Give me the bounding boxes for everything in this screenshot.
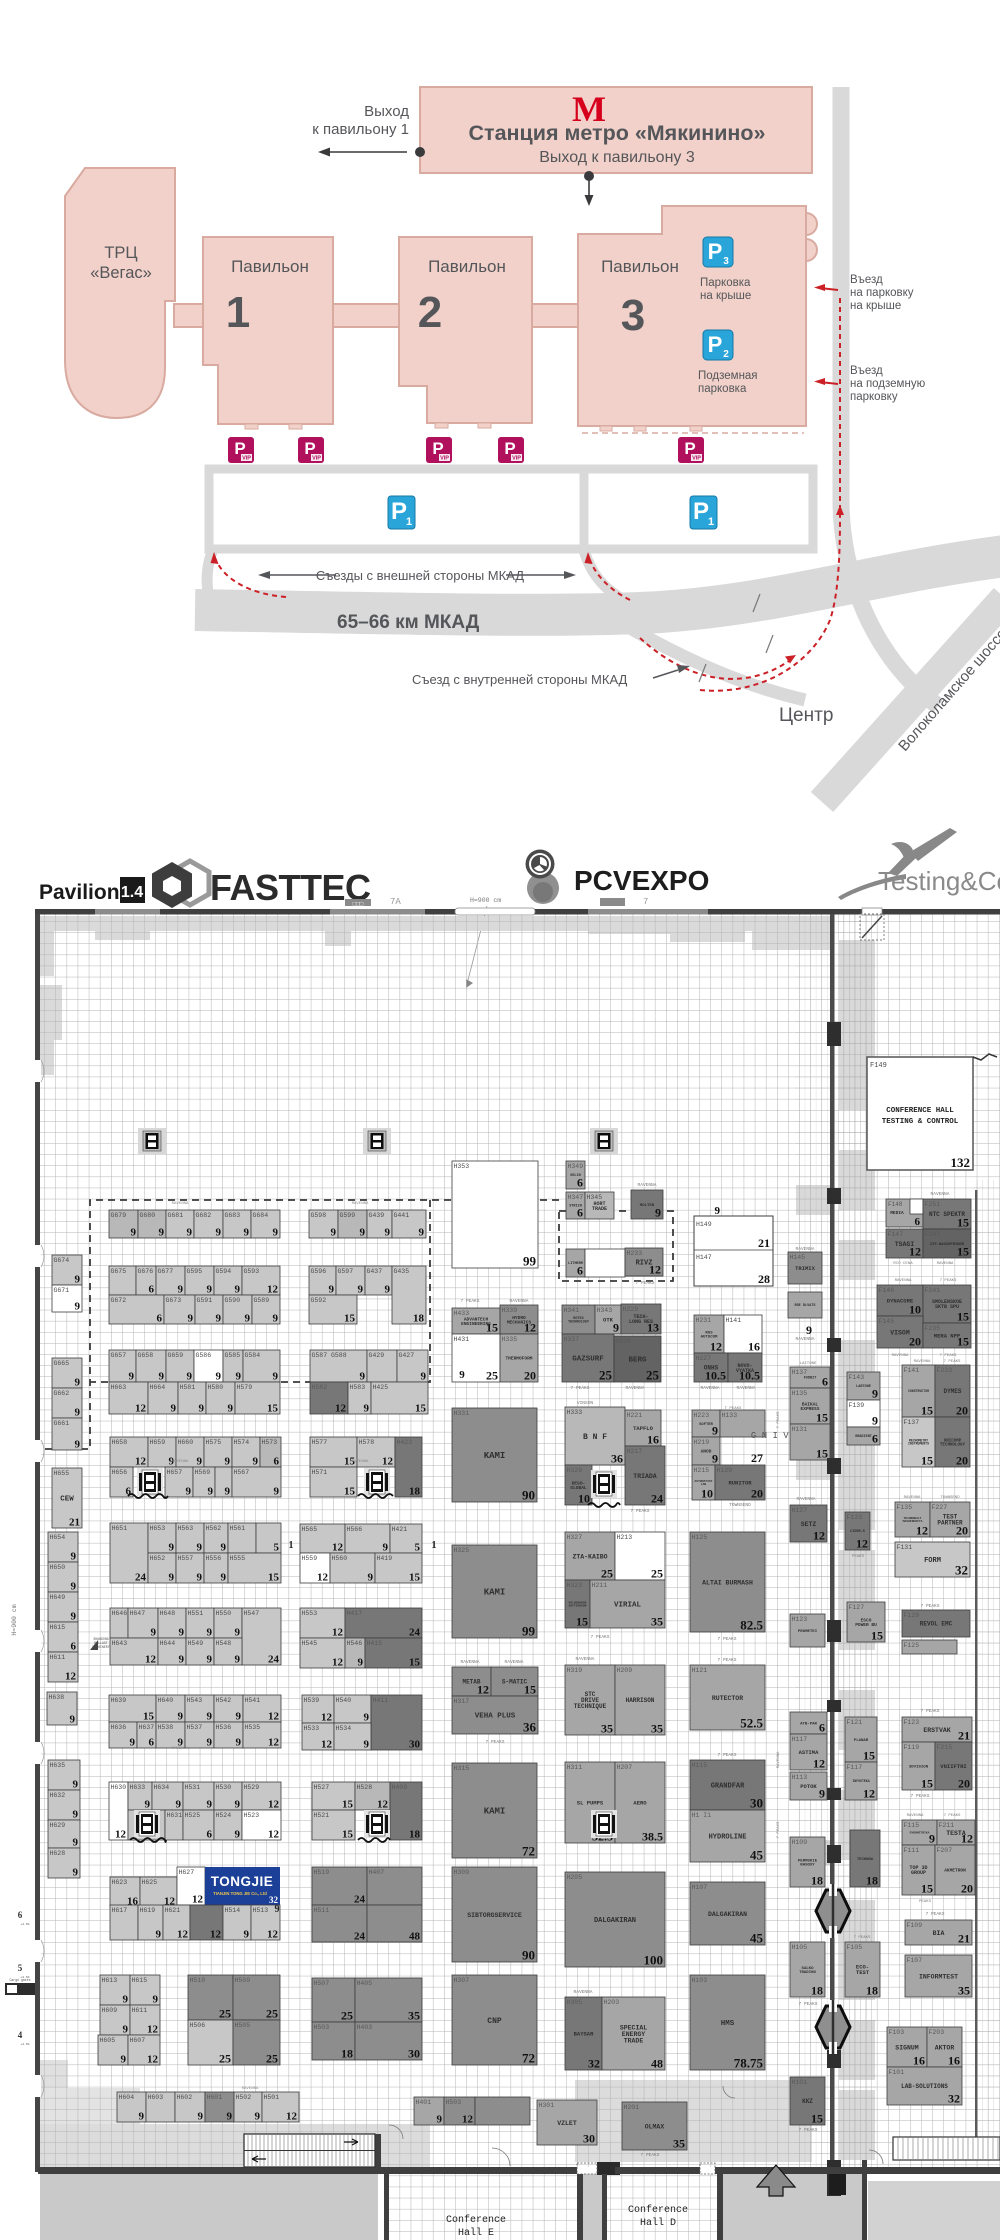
- svg-text:Подземная: Подземная: [698, 370, 758, 382]
- svg-text:15: 15: [957, 1245, 969, 1259]
- svg-text:12: 12: [321, 1712, 333, 1724]
- svg-text:7 PEAKS: 7 PEAKS: [486, 1739, 505, 1745]
- svg-text:7 PEAKS: 7 PEAKS: [799, 2001, 818, 2007]
- svg-text:CEW: CEW: [60, 1496, 74, 1504]
- svg-text:H329: H329: [567, 1467, 583, 1474]
- svg-text:G427: G427: [399, 1352, 415, 1359]
- svg-text:RAVENNA: RAVENNA: [777, 1751, 781, 1768]
- svg-text:VEHA PLUS: VEHA PLUS: [475, 1713, 516, 1721]
- svg-text:100: 100: [644, 1953, 664, 1968]
- svg-text:G439: G439: [369, 1212, 385, 1219]
- svg-text:RAVENNA: RAVENNA: [242, 2087, 259, 2091]
- svg-text:Центр: Центр: [779, 705, 833, 726]
- svg-text:H505: H505: [235, 2022, 251, 2029]
- svg-text:F147: F147: [888, 1231, 904, 1238]
- svg-text:9: 9: [176, 1799, 182, 1811]
- svg-text:H619: H619: [140, 1907, 156, 1914]
- svg-text:G665: G665: [54, 1360, 70, 1367]
- svg-text:H651: H651: [112, 1525, 128, 1532]
- svg-text:6: 6: [577, 1264, 583, 1278]
- svg-text:15: 15: [342, 1799, 354, 1811]
- svg-text:H131: H131: [792, 1426, 808, 1433]
- svg-text:H660: H660: [178, 1439, 194, 1446]
- svg-text:REVOL EMC: REVOL EMC: [920, 1621, 953, 1628]
- svg-text:9: 9: [169, 1572, 175, 1584]
- svg-text:H343: H343: [597, 1307, 613, 1314]
- svg-text:24: 24: [409, 1627, 421, 1639]
- svg-text:H=900 cm: H=900 cm: [470, 897, 501, 904]
- svg-text:H654: H654: [50, 1534, 66, 1541]
- svg-text:6: 6: [577, 1176, 583, 1190]
- svg-text:H147: H147: [696, 1254, 712, 1261]
- svg-text:9: 9: [368, 1572, 374, 1584]
- svg-text:F149: F149: [870, 1062, 887, 1070]
- svg-text:9: 9: [360, 1227, 366, 1239]
- svg-text:9: 9: [235, 1654, 241, 1666]
- svg-text:H403: H403: [357, 2024, 373, 2031]
- svg-text:ASTIMA: ASTIMA: [799, 1749, 820, 1756]
- svg-text:15: 15: [811, 2112, 823, 2126]
- svg-text:DYMES: DYMES: [943, 1388, 961, 1395]
- svg-text:35: 35: [408, 2009, 420, 2023]
- svg-text:H537: H537: [187, 1724, 203, 1731]
- svg-text:16: 16: [647, 1433, 659, 1447]
- svg-text:12: 12: [916, 1524, 928, 1538]
- svg-text:H540: H540: [336, 1697, 352, 1704]
- svg-text:H535: H535: [245, 1724, 261, 1731]
- svg-text:12: 12: [377, 1799, 389, 1811]
- svg-text:H105: H105: [792, 1944, 808, 1951]
- svg-text:GRADIENT: GRADIENT: [855, 1435, 872, 1439]
- svg-text:H533: H533: [304, 1725, 320, 1732]
- svg-text:H514: H514: [225, 1907, 241, 1914]
- svg-text:H309: H309: [454, 1869, 470, 1876]
- svg-text:ANOD: ANOD: [701, 1449, 712, 1455]
- svg-text:SL PUMPS: SL PUMPS: [577, 1799, 604, 1806]
- svg-text:9: 9: [207, 1284, 213, 1296]
- svg-text:9: 9: [613, 1321, 619, 1335]
- svg-text:H542: H542: [216, 1697, 232, 1704]
- svg-text:27: 27: [751, 1451, 763, 1465]
- svg-text:90: 90: [522, 1948, 535, 1963]
- svg-text:9: 9: [364, 1403, 370, 1415]
- svg-text:«Вегас»: «Вегас»: [90, 264, 152, 282]
- svg-text:12: 12: [268, 1711, 280, 1723]
- svg-text:G591: G591: [197, 1297, 213, 1304]
- svg-text:12: 12: [147, 2024, 159, 2036]
- svg-text:H646: H646: [112, 1610, 128, 1617]
- svg-text:25: 25: [219, 2052, 231, 2066]
- svg-text:INSTRUMENTS: INSTRUMENTS: [908, 1442, 929, 1446]
- svg-text:9: 9: [199, 1403, 205, 1415]
- svg-text:G592: G592: [311, 1297, 327, 1304]
- svg-text:H341: H341: [564, 1307, 580, 1314]
- svg-text:H557: H557: [178, 1555, 194, 1562]
- svg-text:7 PEAKS: 7 PEAKS: [636, 1280, 655, 1286]
- svg-text:10.5: 10.5: [705, 1369, 726, 1383]
- svg-text:H561: H561: [230, 1525, 246, 1532]
- svg-text:H615: H615: [50, 1624, 66, 1631]
- svg-text:H511: H511: [314, 1907, 330, 1914]
- svg-text:15: 15: [957, 1335, 969, 1349]
- svg-text:21: 21: [958, 1729, 970, 1743]
- svg-text:VIP: VIP: [440, 456, 449, 462]
- svg-text:RAVENNA: RAVENNA: [510, 1298, 529, 1304]
- svg-text:9: 9: [187, 1371, 193, 1383]
- svg-text:F145: F145: [879, 1318, 895, 1325]
- svg-text:1: 1: [226, 288, 250, 337]
- svg-text:H107: H107: [692, 1884, 708, 1891]
- svg-text:78.75: 78.75: [734, 2056, 764, 2071]
- svg-text:H647: H647: [130, 1610, 146, 1617]
- svg-text:7 PEAKS: 7 PEAKS: [461, 1298, 480, 1304]
- svg-text:9: 9: [385, 1284, 391, 1296]
- svg-text:15: 15: [267, 1403, 279, 1415]
- svg-text:F129: F129: [904, 1612, 920, 1619]
- svg-text:9: 9: [253, 1456, 259, 1468]
- svg-text:H548: H548: [216, 1640, 232, 1647]
- svg-text:9: 9: [75, 1274, 81, 1286]
- svg-text:4: 4: [18, 2030, 23, 2040]
- svg-text:25: 25: [601, 1567, 613, 1581]
- svg-text:PLANAR: PLANAR: [854, 1739, 869, 1743]
- svg-text:Hall E: Hall E: [458, 2227, 494, 2239]
- svg-text:F125: F125: [904, 1642, 920, 1649]
- svg-text:H335: H335: [502, 1336, 518, 1343]
- svg-text:38.5: 38.5: [642, 1830, 663, 1844]
- svg-text:9: 9: [273, 1227, 279, 1239]
- svg-text:48: 48: [409, 1931, 421, 1943]
- svg-text:9: 9: [169, 1542, 175, 1554]
- svg-text:G595: G595: [187, 1268, 203, 1275]
- svg-text:52.5: 52.5: [740, 1716, 763, 1731]
- svg-text:15: 15: [486, 1321, 498, 1335]
- svg-text:RUNITOR: RUNITOR: [728, 1479, 752, 1486]
- svg-text:25: 25: [651, 1567, 663, 1581]
- svg-text:F203: F203: [929, 2029, 945, 2036]
- svg-text:H407: H407: [369, 1869, 385, 1876]
- svg-text:9: 9: [331, 1227, 337, 1239]
- svg-text:H347: H347: [568, 1194, 584, 1201]
- svg-text:H529: H529: [244, 1784, 260, 1791]
- svg-text:H123: H123: [792, 1616, 808, 1623]
- svg-text:H=900 cm: H=900 cm: [11, 1604, 18, 1635]
- svg-text:H609: H609: [102, 2007, 118, 2014]
- svg-text:H565: H565: [302, 1526, 318, 1533]
- svg-text:парковка: парковка: [698, 383, 747, 395]
- svg-text:H109: H109: [792, 1839, 808, 1846]
- svg-text:1: 1: [708, 516, 714, 528]
- svg-text:EVROMETRIKA: EVROMETRIKA: [910, 1832, 930, 1835]
- svg-text:35: 35: [673, 2137, 685, 2151]
- svg-text:3: 3: [723, 256, 729, 267]
- svg-text:H217: H217: [627, 1448, 643, 1455]
- svg-text:на подземную: на подземную: [850, 378, 926, 390]
- svg-text:3DVISION: 3DVISION: [909, 1765, 929, 1769]
- svg-text:20: 20: [958, 1777, 970, 1791]
- svg-text:Testing&Co: Testing&Co: [878, 866, 1000, 896]
- svg-text:SETZ: SETZ: [801, 1521, 817, 1528]
- svg-text:7 PEAKS: 7 PEAKS: [718, 1657, 737, 1663]
- svg-text:F146: F146: [879, 1287, 895, 1294]
- svg-text:H534: H534: [336, 1725, 352, 1732]
- svg-text:F241: F241: [925, 1287, 941, 1294]
- svg-text:G661: G661: [54, 1420, 70, 1427]
- svg-text:9: 9: [221, 1572, 227, 1584]
- svg-text:15: 15: [921, 1882, 933, 1896]
- svg-text:H636: H636: [111, 1724, 127, 1731]
- svg-text:H133: H133: [722, 1412, 738, 1419]
- svg-text:G672: G672: [111, 1297, 127, 1304]
- svg-text:12: 12: [477, 1683, 489, 1697]
- svg-text:F137: F137: [904, 1419, 920, 1426]
- svg-text:7 PEAKS: 7 PEAKS: [921, 1603, 940, 1609]
- svg-text:6: 6: [822, 1375, 828, 1389]
- svg-text:12: 12: [332, 1627, 344, 1639]
- svg-text:24: 24: [268, 1654, 280, 1666]
- svg-text:7 PEAKS: 7 PEAKS: [926, 1911, 945, 1917]
- svg-text:24: 24: [354, 1894, 366, 1906]
- svg-text:7 PEAKS: 7 PEAKS: [641, 2152, 660, 2158]
- svg-text:RAVENNA: RAVENNA: [931, 1191, 950, 1197]
- svg-text:9: 9: [216, 1313, 222, 1325]
- svg-text:12: 12: [317, 1572, 329, 1584]
- svg-text:7 PEAKS: 7 PEAKS: [777, 1821, 781, 1838]
- svg-text:9: 9: [197, 1542, 203, 1554]
- svg-text:H229: H229: [623, 1306, 639, 1313]
- svg-text:9: 9: [459, 1369, 465, 1381]
- svg-text:RAVENNA: RAVENNA: [797, 1496, 816, 1502]
- svg-text:16: 16: [748, 1340, 760, 1354]
- svg-text:H401: H401: [416, 2099, 432, 2106]
- svg-text:12: 12: [268, 1737, 280, 1749]
- svg-text:15: 15: [921, 1454, 933, 1468]
- svg-text:H325: H325: [454, 1547, 470, 1554]
- svg-text:9: 9: [123, 1994, 129, 2006]
- svg-text:9: 9: [225, 1456, 231, 1468]
- svg-text:RIO CENA: RIO CENA: [893, 1262, 913, 1266]
- svg-text:F207: F207: [937, 1847, 953, 1854]
- svg-text:H658: H658: [112, 1439, 128, 1446]
- svg-text:MOLTEN: MOLTEN: [640, 1204, 655, 1208]
- svg-text:H528: H528: [357, 1784, 373, 1791]
- svg-text:9: 9: [712, 1424, 718, 1438]
- svg-text:BERG: BERG: [628, 1357, 647, 1365]
- svg-text:7: 7: [643, 897, 648, 907]
- svg-text:H213: H213: [617, 1534, 633, 1541]
- svg-text:G676: G676: [138, 1268, 154, 1275]
- svg-text:H579: H579: [237, 1384, 253, 1391]
- svg-text:9: 9: [235, 1799, 241, 1811]
- svg-text:H503: H503: [314, 2024, 330, 2031]
- svg-text:9: 9: [73, 1837, 79, 1849]
- svg-text:12: 12: [813, 1757, 825, 1771]
- svg-text:CIDER-S: CIDER-S: [850, 1530, 865, 1534]
- svg-text:F135: F135: [897, 1504, 913, 1511]
- svg-text:9: 9: [73, 1809, 79, 1821]
- svg-text:HYDROLINE: HYDROLINE: [709, 1834, 747, 1842]
- svg-text:21: 21: [69, 1517, 80, 1529]
- svg-text:RAVENNA: RAVENNA: [796, 1336, 815, 1342]
- svg-text:G681: G681: [168, 1212, 184, 1219]
- svg-text:9: 9: [198, 2111, 204, 2123]
- svg-text:1: 1: [432, 1540, 437, 1551]
- svg-text:15: 15: [863, 1749, 875, 1763]
- svg-text:30: 30: [750, 1796, 763, 1811]
- svg-text:G679: G679: [111, 1212, 127, 1219]
- svg-text:KAMI: KAMI: [484, 1451, 506, 1461]
- svg-text:H575: H575: [206, 1439, 222, 1446]
- svg-text:H650: H650: [50, 1564, 66, 1571]
- svg-text:+4.50: +4.50: [20, 2043, 29, 2046]
- svg-text:H551: H551: [188, 1610, 204, 1617]
- svg-text:15: 15: [921, 1777, 933, 1791]
- svg-text:RAVENNA: RAVENNA: [461, 1659, 480, 1665]
- svg-text:PEAKS: PEAKS: [852, 1555, 865, 1559]
- svg-text:H541: H541: [245, 1697, 261, 1704]
- svg-text:9: 9: [385, 1227, 391, 1239]
- svg-text:7 PEAKS: 7 PEAKS: [854, 1936, 871, 1940]
- svg-text:72: 72: [522, 1844, 535, 1859]
- svg-text:H603: H603: [148, 2094, 164, 2101]
- svg-text:H559: H559: [302, 1555, 318, 1562]
- svg-text:10: 10: [909, 1303, 921, 1317]
- svg-text:H549: H549: [188, 1640, 204, 1647]
- svg-text:H117: H117: [792, 1736, 808, 1743]
- svg-text:G441: G441: [394, 1212, 410, 1219]
- svg-text:9: 9: [216, 1227, 222, 1239]
- svg-text:20: 20: [956, 1454, 968, 1468]
- svg-text:Conference: Conference: [446, 2214, 506, 2226]
- svg-text:VNIIFTRI: VNIIFTRI: [940, 1763, 966, 1770]
- svg-text:H633: H633: [130, 1784, 146, 1791]
- svg-text:12: 12: [321, 1739, 333, 1751]
- svg-text:RAVENNA: RAVENNA: [172, 1747, 189, 1751]
- svg-text:H637: H637: [139, 1724, 155, 1731]
- svg-text:H409: H409: [392, 1784, 408, 1791]
- svg-text:GRANDFAR: GRANDFAR: [711, 1783, 745, 1791]
- svg-text:TECKNOW: TECKNOW: [857, 1858, 874, 1862]
- svg-text:H337: H337: [564, 1336, 580, 1343]
- svg-text:25: 25: [266, 2007, 278, 2021]
- svg-text:9: 9: [131, 1227, 137, 1239]
- svg-text:F131: F131: [897, 1544, 913, 1551]
- svg-text:24: 24: [354, 1931, 366, 1943]
- svg-text:TRADING: TRADING: [799, 1971, 816, 1975]
- svg-text:35: 35: [651, 1722, 663, 1736]
- svg-text:9: 9: [186, 1486, 192, 1498]
- svg-text:9: 9: [71, 1611, 77, 1623]
- svg-text:9: 9: [383, 1542, 389, 1554]
- svg-text:12: 12: [961, 1832, 973, 1846]
- svg-text:6: 6: [157, 1313, 163, 1325]
- svg-text:SKTB SPU: SKTB SPU: [935, 1304, 959, 1310]
- svg-text:H581: H581: [180, 1384, 196, 1391]
- svg-text:7 PEAKS: 7 PEAKS: [944, 1814, 961, 1818]
- svg-text:RAVENNA: RAVENNA: [638, 1182, 657, 1188]
- svg-text:Съезды с внешней стороны МКАД: Съезды с внешней стороны МКАД: [316, 568, 524, 583]
- svg-text:15: 15: [576, 1615, 588, 1629]
- svg-text:28: 28: [758, 1272, 770, 1286]
- svg-text:10.5: 10.5: [739, 1369, 760, 1383]
- svg-text:9: 9: [145, 1799, 151, 1811]
- svg-text:12: 12: [268, 1799, 280, 1811]
- svg-text:TOWNSEND: TOWNSEND: [729, 1502, 751, 1508]
- svg-text:OLMAX: OLMAX: [645, 2123, 665, 2130]
- svg-text:45: 45: [750, 1931, 764, 1946]
- svg-text:7 PEAKS: 7 PEAKS: [911, 1793, 930, 1799]
- svg-text:7 PEAKS: 7 PEAKS: [940, 1354, 957, 1358]
- svg-text:7 PEAKS: 7 PEAKS: [944, 1360, 961, 1364]
- svg-text:TRADE: TRADE: [592, 1206, 607, 1212]
- svg-text:15: 15: [344, 1486, 356, 1498]
- svg-text:H634: H634: [154, 1784, 170, 1791]
- svg-text:H628: H628: [50, 1850, 66, 1857]
- svg-text:H215: H215: [694, 1467, 710, 1474]
- svg-text:GROUP: GROUP: [911, 1870, 926, 1876]
- svg-text:9: 9: [419, 1227, 425, 1239]
- svg-text:G585: G585: [225, 1352, 241, 1359]
- svg-text:G657: G657: [111, 1352, 127, 1359]
- svg-text:RAVENNA: RAVENNA: [904, 1496, 921, 1500]
- svg-text:ERSTVAK: ERSTVAK: [923, 1727, 950, 1734]
- svg-text:H583: H583: [350, 1384, 366, 1391]
- svg-text:H640: H640: [158, 1697, 174, 1704]
- svg-text:H227: H227: [696, 1355, 712, 1362]
- svg-text:P: P: [693, 498, 709, 525]
- svg-text:9: 9: [221, 1542, 227, 1554]
- svg-text:G683: G683: [225, 1212, 241, 1219]
- svg-text:Выход: Выход: [364, 103, 409, 120]
- svg-text:9: 9: [123, 2024, 129, 2036]
- svg-text:25: 25: [219, 2007, 231, 2021]
- svg-text:H580: H580: [208, 1384, 224, 1391]
- svg-text:H205: H205: [567, 1874, 583, 1881]
- svg-text:12: 12: [267, 1284, 279, 1296]
- svg-text:парковку: парковку: [850, 391, 898, 403]
- svg-text:SOFTSENSOR: SOFTSENSOR: [568, 1605, 586, 1608]
- svg-text:H115: H115: [692, 1762, 708, 1769]
- svg-text:H649: H649: [50, 1594, 66, 1601]
- svg-text:H657: H657: [167, 1469, 183, 1476]
- svg-text:H121: H121: [692, 1667, 708, 1674]
- svg-text:RSE DLVATS: RSE DLVATS: [794, 1304, 815, 1308]
- svg-text:H664: H664: [150, 1384, 166, 1391]
- svg-text:20: 20: [956, 1404, 968, 1418]
- svg-text:H415: H415: [367, 1640, 383, 1647]
- svg-text:H623: H623: [112, 1879, 128, 1886]
- svg-text:32: 32: [955, 1563, 968, 1578]
- svg-text:9: 9: [207, 1737, 213, 1749]
- svg-text:H425: H425: [373, 1384, 389, 1391]
- svg-text:H545: H545: [302, 1640, 318, 1647]
- svg-text:9: 9: [236, 1737, 242, 1749]
- svg-text:9: 9: [236, 1711, 242, 1723]
- svg-text:20: 20: [524, 1369, 536, 1383]
- svg-text:9: 9: [236, 1371, 242, 1383]
- svg-text:TECHNOLOGY: TECHNOLOGY: [940, 1444, 966, 1448]
- svg-text:H423: H423: [397, 1439, 413, 1446]
- svg-text:12: 12: [286, 2111, 298, 2123]
- svg-text:5: 5: [415, 1542, 421, 1554]
- svg-text:POWER BU: POWER BU: [855, 1622, 877, 1628]
- svg-text:G671: G671: [54, 1287, 70, 1294]
- svg-text:9: 9: [244, 1929, 250, 1941]
- svg-text:12: 12: [145, 1654, 157, 1666]
- svg-text:DALGAKIRAN: DALGAKIRAN: [594, 1917, 636, 1925]
- svg-text:G435: G435: [394, 1268, 410, 1275]
- svg-text:HARRISON: HARRISON: [626, 1697, 655, 1704]
